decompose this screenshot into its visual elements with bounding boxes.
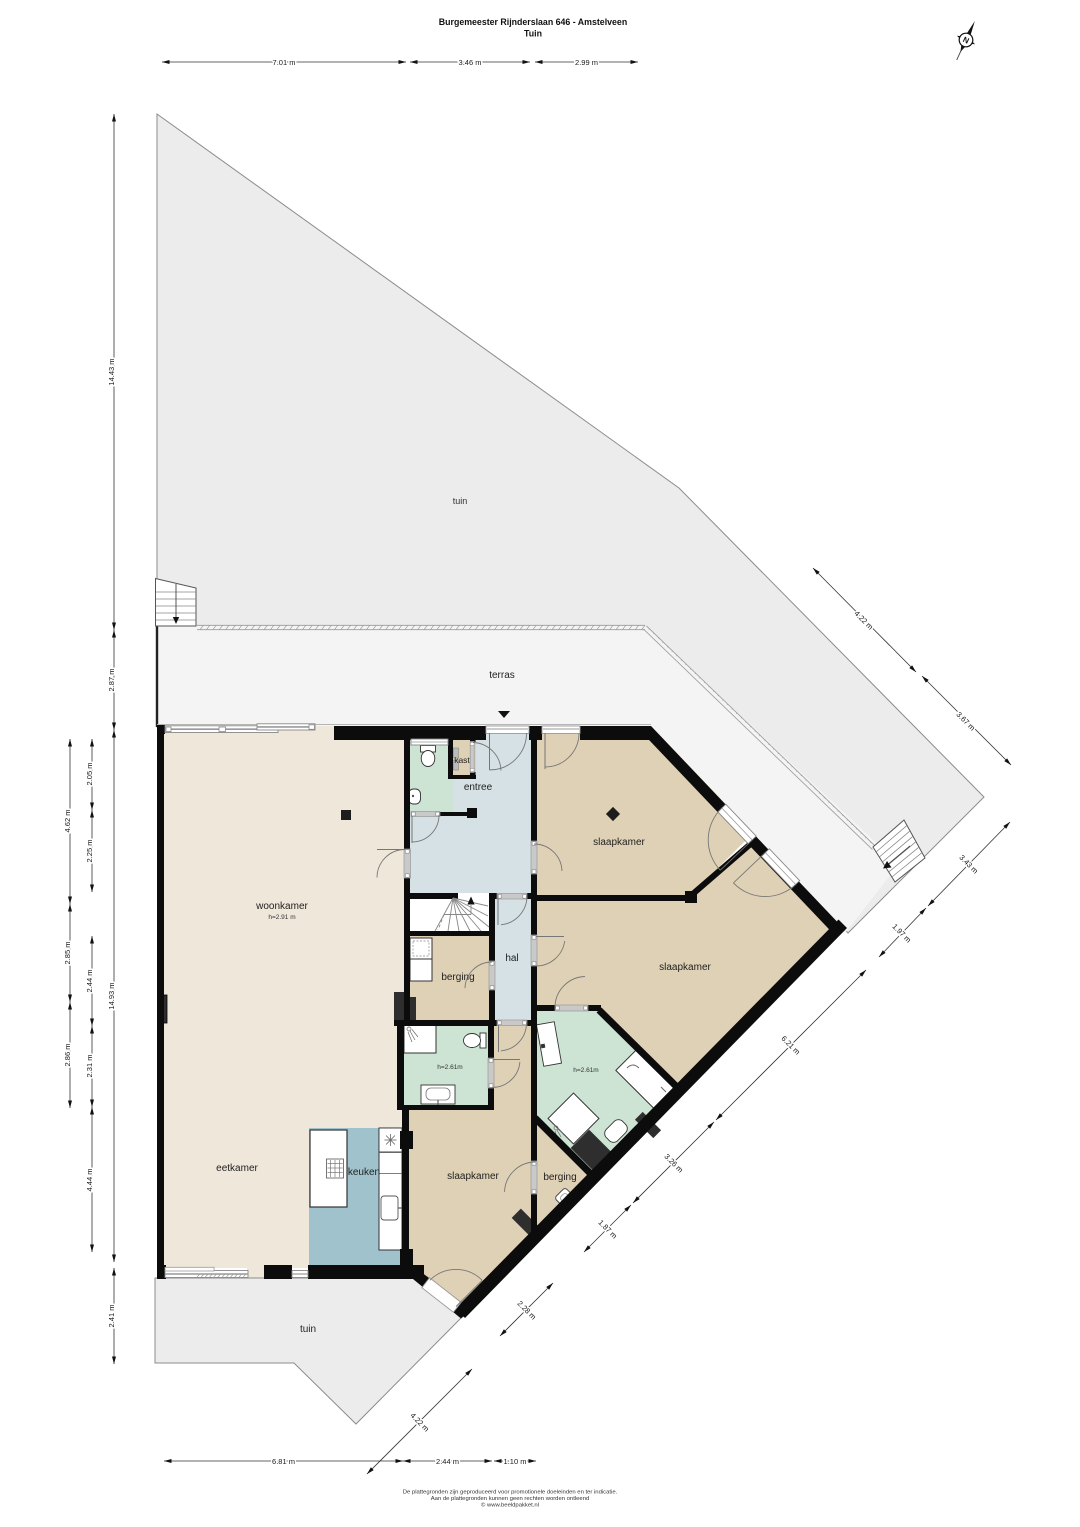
svg-text:slaapkamer: slaapkamer <box>593 837 645 848</box>
svg-text:4.62 m: 4.62 m <box>63 810 72 833</box>
svg-text:terras: terras <box>489 670 515 681</box>
svg-text:h=2.61m: h=2.61m <box>437 1064 462 1071</box>
svg-text:3.46 m: 3.46 m <box>459 58 482 67</box>
svg-text:Tuin: Tuin <box>524 29 542 39</box>
svg-text:hal: hal <box>505 953 518 964</box>
svg-text:7.01 m: 7.01 m <box>273 58 296 67</box>
svg-text:2.31 m: 2.31 m <box>85 1055 94 1078</box>
svg-text:h=2.61m: h=2.61m <box>573 1067 598 1074</box>
svg-text:tuin: tuin <box>453 496 468 506</box>
svg-text:6.81 m: 6.81 m <box>272 1457 295 1466</box>
svg-text:14.93 m: 14.93 m <box>107 982 116 1009</box>
svg-text:De plattegronden zijn geproduc: De plattegronden zijn geproduceerd voor … <box>403 1490 618 1496</box>
svg-text:2.86 m: 2.86 m <box>63 1044 72 1067</box>
svg-text:keuken: keuken <box>348 1167 380 1178</box>
svg-text:1.10 m: 1.10 m <box>504 1457 527 1466</box>
svg-text:berging: berging <box>543 1172 576 1183</box>
svg-text:2.44 m: 2.44 m <box>436 1457 459 1466</box>
svg-text:berging: berging <box>441 972 474 983</box>
svg-text:tuin: tuin <box>300 1324 316 1335</box>
svg-text:2.44 m: 2.44 m <box>85 970 94 993</box>
svg-text:kast: kast <box>454 755 470 765</box>
svg-text:2.25 m: 2.25 m <box>85 840 94 863</box>
svg-text:h=2.91 m: h=2.91 m <box>268 914 295 921</box>
svg-text:2.41 m: 2.41 m <box>107 1305 116 1328</box>
svg-text:2.87 m: 2.87 m <box>107 669 116 692</box>
svg-text:14.43 m: 14.43 m <box>107 358 116 385</box>
svg-text:2.99 m: 2.99 m <box>575 58 598 67</box>
svg-text:entree: entree <box>464 782 493 793</box>
svg-text:© www.beeldpakket.nl: © www.beeldpakket.nl <box>481 1502 539 1509</box>
svg-text:slaapkamer: slaapkamer <box>447 1171 499 1182</box>
svg-text:eetkamer: eetkamer <box>216 1163 258 1174</box>
svg-text:slaapkamer: slaapkamer <box>659 962 711 973</box>
svg-text:woonkamer: woonkamer <box>255 901 308 912</box>
svg-text:2.05 m: 2.05 m <box>85 763 94 786</box>
svg-text:Aan de plattegronden kunnen ge: Aan de plattegronden kunnen geen rechten… <box>431 1496 590 1502</box>
svg-text:Burgemeester Rijnderslaan 646: Burgemeester Rijnderslaan 646 - Amstelve… <box>439 17 627 27</box>
svg-text:2.85 m: 2.85 m <box>63 942 72 965</box>
svg-text:4.44 m: 4.44 m <box>85 1169 94 1192</box>
